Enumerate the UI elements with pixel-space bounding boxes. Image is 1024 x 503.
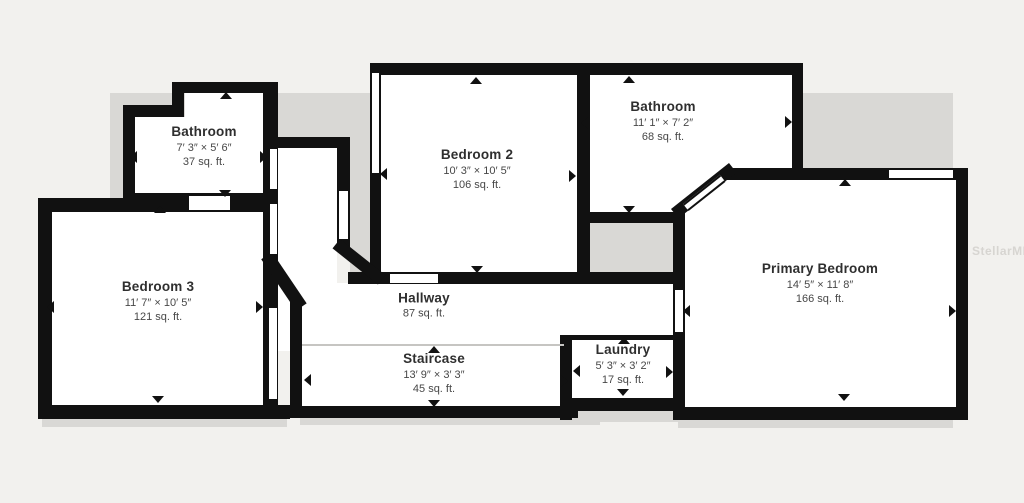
wall-segment <box>673 407 968 420</box>
room-floor <box>278 147 337 283</box>
plan-shadow <box>678 419 953 428</box>
wall-segment <box>956 168 968 420</box>
door-opening <box>270 149 277 189</box>
dimension-arrow-right <box>569 170 576 182</box>
window-marker <box>889 170 953 178</box>
room-dimensions: 5′ 3″ × 3′ 2″ <box>595 360 650 372</box>
room-label-bathroom-2: Bathroom 11′ 1″ × 7′ 2″ 68 sq. ft. <box>630 99 695 143</box>
room-name: Staircase <box>403 351 465 366</box>
door-opening <box>675 290 683 332</box>
door-opening <box>390 274 438 283</box>
dimension-arrow-left <box>380 168 387 180</box>
dimension-arrow-down <box>219 190 231 197</box>
dimension-arrow-up <box>839 179 851 186</box>
window-marker <box>339 191 348 239</box>
door-opening <box>189 196 230 210</box>
room-label-laundry: Laundry 5′ 3″ × 3′ 2″ 17 sq. ft. <box>595 342 650 386</box>
window-marker <box>372 73 379 173</box>
wall-segment <box>577 63 590 284</box>
dimension-arrow-right <box>561 375 568 387</box>
room-label-bedroom-2: Bedroom 2 10′ 3″ × 10′ 5″ 106 sq. ft. <box>441 147 513 191</box>
room-area: 121 sq. ft. <box>122 311 194 323</box>
room-name: Bedroom 3 <box>122 279 194 294</box>
room-dimensions: 11′ 7″ × 10′ 5″ <box>122 297 194 309</box>
wall-segment <box>792 63 803 180</box>
dimension-arrow-down <box>623 206 635 213</box>
dimension-arrow-right <box>666 366 673 378</box>
dimension-arrow-left <box>683 305 690 317</box>
dimension-arrow-down <box>152 396 164 403</box>
room-label-hallway: Hallway 87 sq. ft. <box>398 291 450 320</box>
wall-segment <box>38 405 290 419</box>
door-opening <box>269 308 277 399</box>
room-area: 87 sq. ft. <box>398 308 450 320</box>
room-dimensions: 13′ 9″ × 3′ 3″ <box>403 369 465 381</box>
room-dimensions: 11′ 1″ × 7′ 2″ <box>630 117 695 129</box>
room-area: 166 sq. ft. <box>762 293 878 305</box>
dimension-arrow-left <box>47 301 54 313</box>
dimension-arrow-down <box>838 394 850 401</box>
dimension-arrow-left <box>304 374 311 386</box>
dimension-arrow-up <box>470 77 482 84</box>
dimension-arrow-down <box>428 400 440 407</box>
dimension-arrow-right <box>785 116 792 128</box>
dimension-arrow-up <box>154 206 166 213</box>
stellar-mls-watermark: StellarMLS <box>972 244 1024 258</box>
room-label-staircase: Staircase 13′ 9″ × 3′ 3″ 45 sq. ft. <box>403 351 465 395</box>
dimension-arrow-right <box>256 301 263 313</box>
room-name: Bathroom <box>171 124 236 139</box>
room-area: 106 sq. ft. <box>441 179 513 191</box>
room-label-bathroom-1: Bathroom 7′ 3″ × 5′ 6″ 37 sq. ft. <box>171 124 236 168</box>
plan-shadow <box>110 93 123 198</box>
plan-shadow <box>42 418 287 427</box>
wall-segment <box>288 406 578 418</box>
dimension-arrow-up <box>220 92 232 99</box>
room-area: 37 sq. ft. <box>171 156 236 168</box>
room-name: Bathroom <box>630 99 695 114</box>
dimension-arrow-down <box>617 389 629 396</box>
dimension-arrow-up <box>623 76 635 83</box>
plan-shadow <box>300 417 600 425</box>
room-name: Laundry <box>595 342 650 357</box>
plan-shadow <box>588 222 676 278</box>
wall-segment <box>577 212 683 223</box>
dimension-arrow-down <box>471 266 483 273</box>
wall-segment <box>560 398 683 411</box>
room-name: Hallway <box>398 291 450 306</box>
room-dimensions: 14′ 5″ × 11′ 8″ <box>762 279 878 291</box>
room-label-bedroom-3: Bedroom 3 11′ 7″ × 10′ 5″ 121 sq. ft. <box>122 279 194 323</box>
room-dimensions: 7′ 3″ × 5′ 6″ <box>171 142 236 154</box>
floorplan-layers <box>0 0 1024 503</box>
dimension-arrow-left <box>130 151 137 163</box>
room-area: 68 sq. ft. <box>630 131 695 143</box>
room-area: 45 sq. ft. <box>403 383 465 395</box>
dimension-arrow-left <box>581 117 588 129</box>
dimension-arrow-right <box>260 151 267 163</box>
room-area: 17 sq. ft. <box>595 374 650 386</box>
room-name: Bedroom 2 <box>441 147 513 162</box>
dimension-arrow-right <box>949 305 956 317</box>
dimension-arrow-left <box>573 365 580 377</box>
door-opening <box>270 204 277 254</box>
room-label-primary-bedroom: Primary Bedroom 14′ 5″ × 11′ 8″ 166 sq. … <box>762 261 878 305</box>
room-dimensions: 10′ 3″ × 10′ 5″ <box>441 165 513 177</box>
wall-segment <box>290 298 302 418</box>
room-name: Primary Bedroom <box>762 261 878 276</box>
floorplan: Bathroom 7′ 3″ × 5′ 6″ 37 sq. ft. Bedroo… <box>0 0 1024 503</box>
